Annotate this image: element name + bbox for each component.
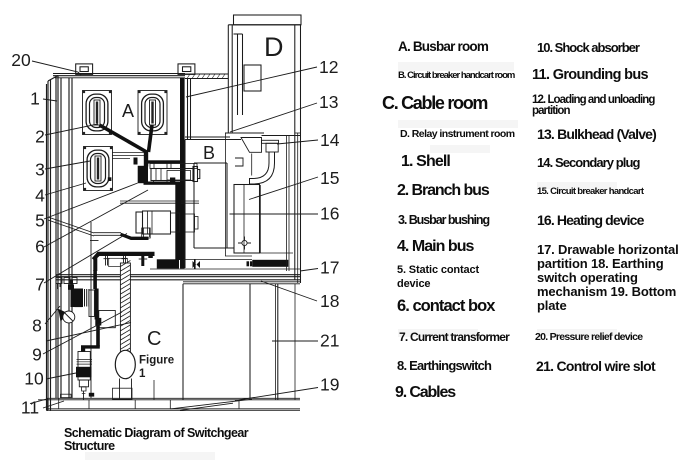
svg-text:2: 2 (35, 127, 45, 147)
svg-text:20: 20 (11, 50, 31, 70)
svg-text:16: 16 (320, 204, 339, 224)
svg-text:4: 4 (35, 186, 45, 206)
svg-text:1: 1 (139, 368, 146, 380)
svg-text:17: 17 (320, 258, 339, 278)
svg-text:5: 5 (35, 211, 45, 231)
svg-text:1: 1 (30, 89, 40, 109)
svg-text:18: 18 (320, 291, 339, 311)
svg-text:D: D (264, 32, 284, 62)
svg-text:21: 21 (320, 331, 339, 351)
svg-text:11: 11 (21, 398, 39, 418)
svg-text:B: B (203, 143, 215, 163)
svg-text:12: 12 (319, 57, 338, 77)
svg-text:13: 13 (319, 92, 338, 112)
svg-text:Figure: Figure (139, 355, 174, 367)
svg-text:19: 19 (320, 375, 339, 395)
svg-text:10: 10 (24, 369, 44, 389)
svg-text:15: 15 (320, 168, 339, 188)
svg-text:3: 3 (35, 160, 45, 180)
svg-text:6: 6 (35, 237, 45, 257)
svg-text:14: 14 (320, 130, 340, 150)
svg-text:8: 8 (32, 316, 42, 336)
svg-text:C: C (147, 328, 161, 350)
svg-text:A: A (122, 101, 134, 121)
svg-text:9: 9 (32, 345, 42, 365)
svg-text:7: 7 (35, 275, 45, 295)
